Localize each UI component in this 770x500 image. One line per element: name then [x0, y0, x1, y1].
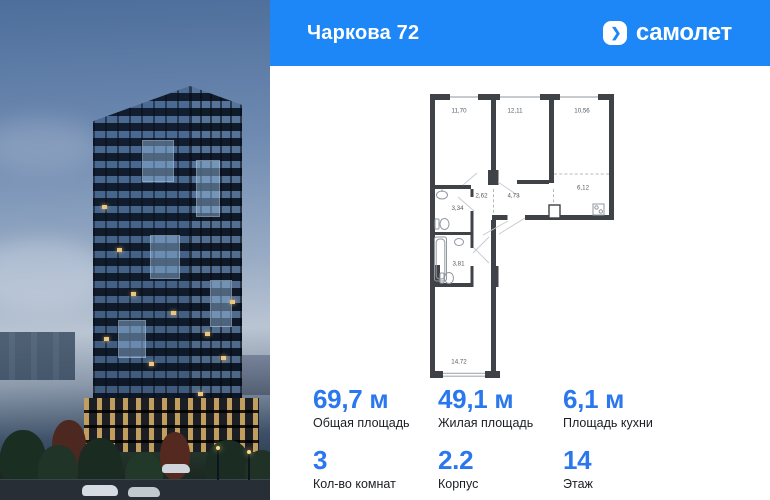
car — [128, 487, 160, 497]
room-area-label: 12,11 — [507, 108, 523, 115]
apartment-stats: 69,7 м Общая площадь 49,1 м Жилая площад… — [313, 386, 688, 492]
glass-balcony — [196, 160, 220, 217]
lit-window — [205, 332, 210, 336]
lamp-light — [247, 450, 251, 454]
lit-window — [171, 311, 176, 315]
stat-living-area: 49,1 м Жилая площадь — [438, 386, 563, 431]
room-area-label: 2,62 — [475, 193, 488, 200]
walls — [430, 94, 614, 378]
lit-window — [149, 362, 154, 366]
stat-value: 6,1 м — [563, 386, 688, 412]
stat-value: 49,1 м — [438, 386, 563, 412]
lit-window — [102, 205, 107, 209]
stat-floor: 14 Этаж — [563, 447, 688, 492]
stat-rooms-count: 3 Кол-во комнат — [313, 447, 438, 492]
lamp-light — [216, 446, 220, 450]
stat-total-area: 69,7 м Общая площадь — [313, 386, 438, 431]
stat-label: Площадь кухни — [563, 416, 688, 431]
room-area-label: 3,34 — [451, 205, 464, 212]
distant-city-silhouette — [0, 332, 75, 380]
project-title: Чаркова 72 — [307, 22, 419, 45]
header-bar: Чаркова 72 ❯ самолет — [270, 0, 770, 66]
samolet-logo-icon: ❯ — [603, 21, 627, 45]
car — [162, 464, 190, 473]
floorplan: 11,70 12,11 10,56 6,12 4,73 2,62 3,34 3,… — [425, 85, 620, 385]
glass-balcony — [210, 280, 232, 327]
room-area-label: 10,56 — [574, 108, 590, 115]
stat-label: Жилая площадь — [438, 416, 563, 431]
room-area-label: 4,73 — [507, 193, 520, 200]
building-photo — [0, 0, 270, 500]
stat-label: Корпус — [438, 477, 563, 492]
samolet-logo[interactable]: ❯ самолет — [603, 19, 732, 47]
glass-balcony — [142, 140, 174, 182]
info-panel: Чаркова 72 ❯ самолет — [270, 0, 770, 500]
street-lamp — [248, 452, 250, 480]
room-area-label: 3,81 — [452, 261, 465, 268]
listing-card: Чаркова 72 ❯ самолет — [0, 0, 770, 500]
room-area-label: 6,12 — [577, 185, 590, 192]
stat-value: 14 — [563, 447, 688, 473]
glass-balcony — [118, 320, 146, 358]
vent-shaft — [549, 205, 560, 218]
lit-window — [198, 392, 203, 396]
lit-window — [117, 248, 122, 252]
chevron-right-icon: ❯ — [610, 25, 621, 41]
street-lamp — [217, 448, 219, 480]
lit-window — [131, 292, 136, 296]
stat-label: Кол-во комнат — [313, 477, 438, 492]
samolet-logo-text: самолет — [636, 19, 732, 47]
glass-balcony — [150, 235, 180, 279]
stat-value: 2.2 — [438, 447, 563, 473]
stat-label: Этаж — [563, 477, 688, 492]
lit-window — [230, 300, 235, 304]
stat-kitchen-area: 6,1 м Площадь кухни — [563, 386, 688, 431]
bath-kitchen-fixtures — [435, 190, 605, 284]
lit-window — [221, 356, 226, 360]
room-area-label: 14,72 — [451, 359, 467, 366]
stat-building: 2.2 Корпус — [438, 447, 563, 492]
stat-value: 69,7 м — [313, 386, 438, 412]
stat-label: Общая площадь — [313, 416, 438, 431]
plan-windows — [443, 97, 598, 376]
lit-window — [104, 337, 109, 341]
room-area-label: 11,70 — [451, 108, 467, 115]
car — [82, 485, 118, 496]
stat-value: 3 — [313, 447, 438, 473]
